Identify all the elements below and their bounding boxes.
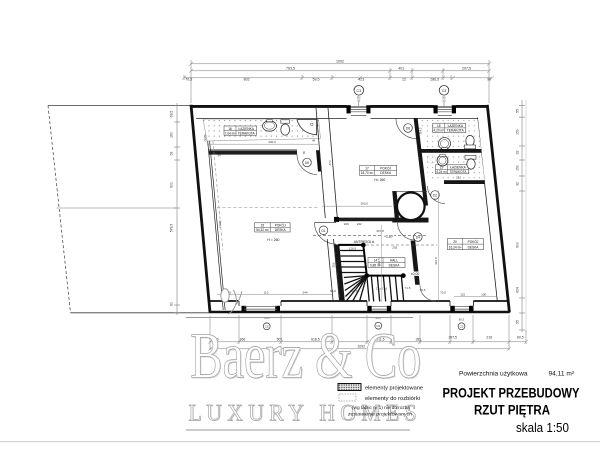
svg-text:218: 218 [486, 336, 492, 340]
svg-text:310,5: 310,5 [377, 258, 381, 266]
svg-text:100: 100 [481, 292, 486, 296]
svg-text:12: 12 [402, 77, 406, 81]
svg-text:114,5: 114,5 [419, 127, 423, 134]
svg-text:401: 401 [398, 66, 404, 70]
svg-text:75,5: 75,5 [420, 288, 426, 292]
svg-text:150: 150 [516, 129, 520, 135]
svg-text:RZUT PIĘTRA: RZUT PIĘTRA [474, 403, 550, 418]
svg-text:59,5: 59,5 [313, 77, 320, 81]
svg-text:(190): (190) [203, 134, 207, 141]
svg-text:287,5: 287,5 [448, 336, 457, 340]
svg-text:C3: C3 [356, 89, 361, 93]
svg-text:+2,80: +2,80 [384, 235, 393, 239]
svg-text:128,9: 128,9 [349, 246, 356, 250]
svg-text:90: 90 [487, 77, 491, 81]
svg-text:17: 17 [365, 166, 369, 170]
svg-text:7,04 m²: 7,04 m² [225, 131, 236, 135]
svg-text:TERAKOTA: TERAKOTA [238, 131, 256, 135]
svg-text:H = 260: H = 260 [267, 238, 279, 242]
svg-text:4,24 m²: 4,24 m² [436, 170, 447, 174]
svg-text:34: 34 [218, 153, 222, 157]
svg-text:69,5: 69,5 [170, 111, 174, 118]
svg-text:4,20 m²: 4,20 m² [433, 129, 444, 133]
svg-text:160: 160 [170, 132, 174, 138]
svg-text:ŁAZIENKA: ŁAZIENKA [448, 124, 464, 128]
svg-text:D6: D6 [406, 127, 410, 131]
svg-text:PROJEKT PRZEBUDOWY: PROJEKT PRZEBUDOWY [443, 386, 580, 401]
svg-text:70,5: 70,5 [440, 291, 446, 295]
svg-text:292: 292 [392, 246, 397, 250]
svg-text:232: 232 [456, 176, 461, 180]
svg-text:ŁAZIENKA: ŁAZIENKA [238, 127, 254, 131]
svg-text:Baerz & Co: Baerz & Co [190, 319, 421, 392]
svg-text:624: 624 [516, 287, 520, 293]
svg-text:96,0: 96,0 [330, 289, 336, 293]
svg-text:elementy do rozbiórki: elementy do rozbiórki [365, 396, 420, 402]
svg-text:POKÓJ: POKÓJ [380, 165, 391, 170]
svg-text:94,11 m²: 94,11 m² [549, 371, 575, 378]
svg-text:310,5: 310,5 [434, 257, 438, 265]
svg-text:579,5: 579,5 [170, 224, 174, 233]
svg-text:HALL: HALL [390, 259, 398, 263]
svg-text:32: 32 [516, 182, 520, 186]
svg-text:207,5: 207,5 [462, 66, 471, 70]
svg-text:DESKA: DESKA [380, 171, 392, 175]
svg-text:15: 15 [261, 224, 265, 228]
svg-text:32: 32 [516, 151, 520, 155]
svg-text:55: 55 [516, 320, 520, 324]
svg-text:16: 16 [228, 127, 232, 131]
svg-text:430,0: 430,0 [268, 140, 276, 144]
svg-text:55: 55 [516, 109, 520, 113]
svg-text:TERAKOTA: TERAKOTA [450, 170, 468, 174]
svg-text:240: 240 [344, 222, 349, 226]
svg-text:(wg tablic nr 1) nie do rozbą: (wg tablic nr 1) nie do rozbą [352, 405, 411, 410]
svg-text:POKÓJ: POKÓJ [468, 239, 479, 244]
svg-text:900: 900 [170, 182, 174, 188]
svg-text:D5: D5 [305, 161, 309, 165]
svg-text:20: 20 [453, 240, 457, 244]
svg-text:900: 900 [516, 242, 520, 248]
svg-text:115: 115 [460, 292, 465, 296]
svg-text:1092: 1092 [336, 59, 344, 63]
svg-text:Powierzchnia użytkowa: Powierzchnia użytkowa [459, 371, 528, 378]
svg-text:ŁAZIENKA: ŁAZIENKA [450, 166, 466, 170]
svg-text:60: 60 [170, 302, 174, 306]
svg-text:423: 423 [358, 77, 364, 81]
svg-text:±0,00: ±0,00 [411, 272, 420, 276]
svg-text:46: 46 [312, 139, 316, 143]
svg-text:DESKA: DESKA [275, 228, 287, 232]
svg-text:80,5: 80,5 [459, 318, 465, 322]
svg-text:286,5: 286,5 [430, 77, 439, 81]
svg-text:52: 52 [170, 152, 174, 156]
svg-text:70,5: 70,5 [185, 77, 192, 81]
svg-text:D4: D4 [416, 236, 420, 240]
svg-text:H= 260: H= 260 [374, 178, 385, 182]
svg-text:DESKA: DESKA [389, 263, 401, 267]
svg-text:elementy projektowane: elementy projektowane [365, 385, 423, 391]
svg-text:POKÓJ: POKÓJ [275, 223, 286, 228]
svg-text:DESKA: DESKA [468, 246, 480, 250]
svg-text:110: 110 [264, 291, 269, 295]
svg-text:260,0: 260,0 [360, 201, 368, 205]
svg-text:242: 242 [357, 222, 362, 226]
svg-text:473: 473 [328, 160, 332, 165]
svg-text:(190): (190) [218, 220, 222, 227]
svg-text:C2: C2 [460, 325, 464, 329]
svg-text:C3: C3 [442, 89, 447, 93]
svg-text:16,24 m²: 16,24 m² [449, 246, 462, 250]
svg-text:437,8: 437,8 [376, 229, 384, 233]
svg-text:302: 302 [331, 262, 335, 267]
svg-text:71,5: 71,5 [405, 286, 411, 290]
svg-text:763,5: 763,5 [286, 66, 295, 70]
svg-text:skala 1:50: skala 1:50 [516, 421, 569, 435]
svg-text:54,32 m²: 54,32 m² [256, 228, 269, 232]
svg-text:150: 150 [516, 165, 520, 171]
svg-text:18,70 m²: 18,70 m² [361, 171, 374, 175]
svg-text:18: 18 [437, 124, 441, 128]
svg-text:zestawienie projektowanych: zestawienie projektowanych [347, 412, 413, 417]
svg-text:802: 802 [244, 77, 250, 81]
svg-text:TERAKOTA: TERAKOTA [447, 129, 465, 133]
svg-text:60,5: 60,5 [517, 336, 524, 340]
svg-text:244: 244 [302, 291, 307, 295]
svg-text:D1: D1 [321, 229, 325, 233]
svg-text:104,0: 104,0 [350, 289, 358, 293]
svg-text:D2: D2 [433, 194, 437, 198]
